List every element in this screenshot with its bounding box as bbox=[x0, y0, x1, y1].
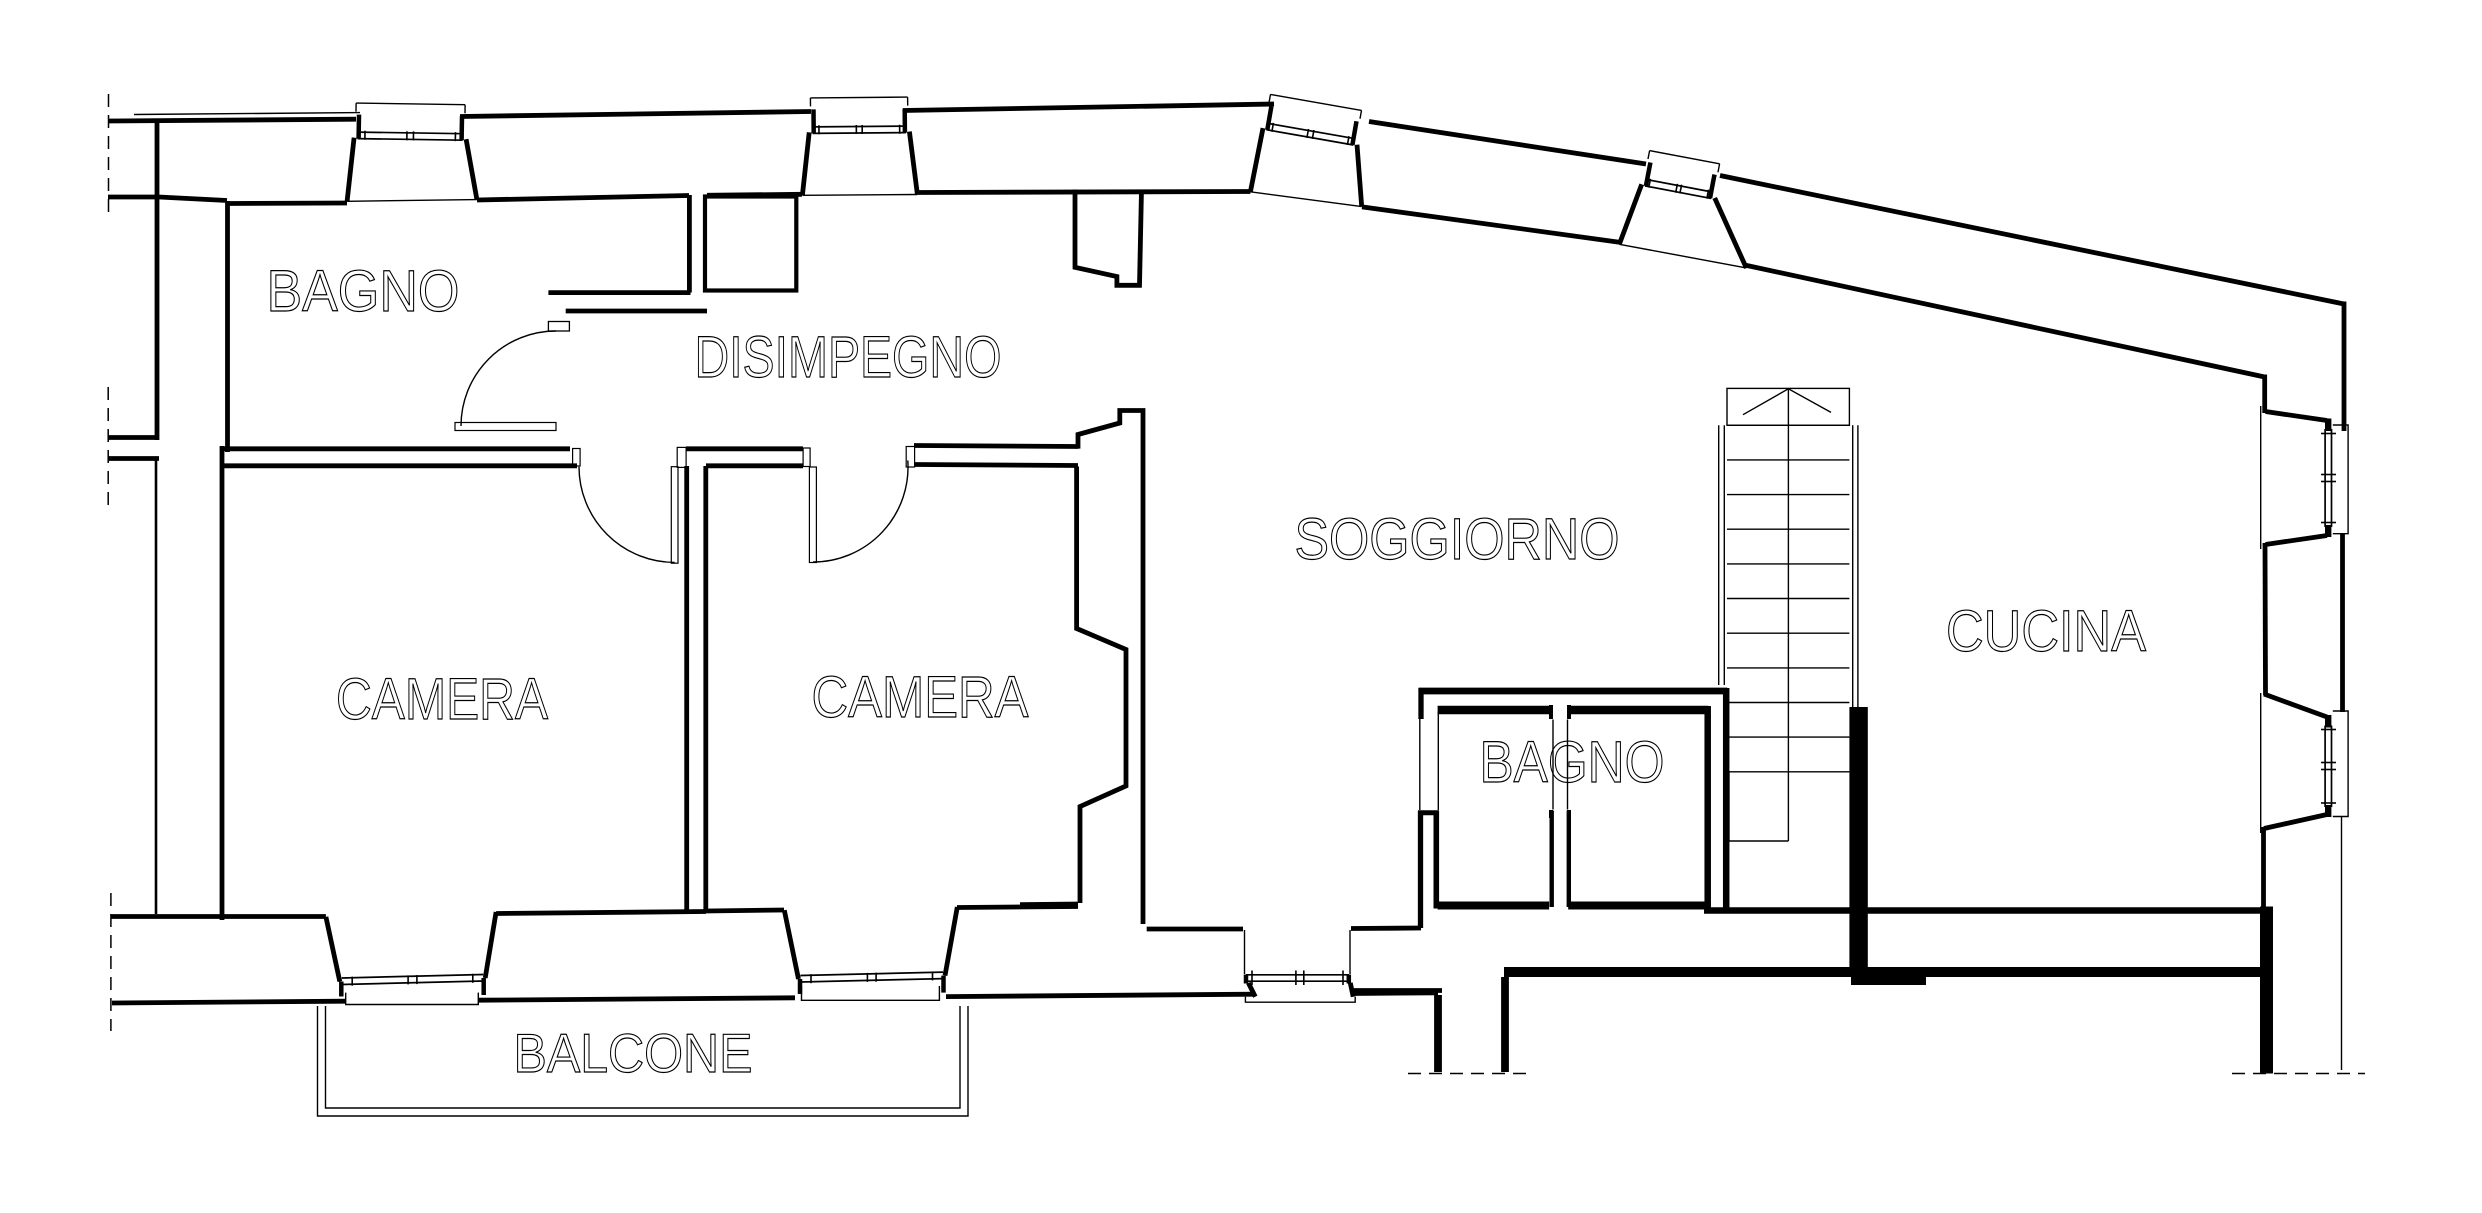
svg-text:CAMERA: CAMERA bbox=[812, 665, 1029, 730]
svg-text:BAGNO: BAGNO bbox=[1480, 730, 1665, 795]
svg-text:BALCONE: BALCONE bbox=[514, 1022, 753, 1084]
svg-text:CUCINA: CUCINA bbox=[1946, 599, 2146, 664]
svg-text:DISIMPEGNO: DISIMPEGNO bbox=[695, 325, 1002, 390]
svg-text:SOGGIORNO: SOGGIORNO bbox=[1295, 507, 1620, 572]
svg-text:BAGNO: BAGNO bbox=[267, 259, 460, 324]
svg-text:CAMERA: CAMERA bbox=[336, 667, 548, 732]
